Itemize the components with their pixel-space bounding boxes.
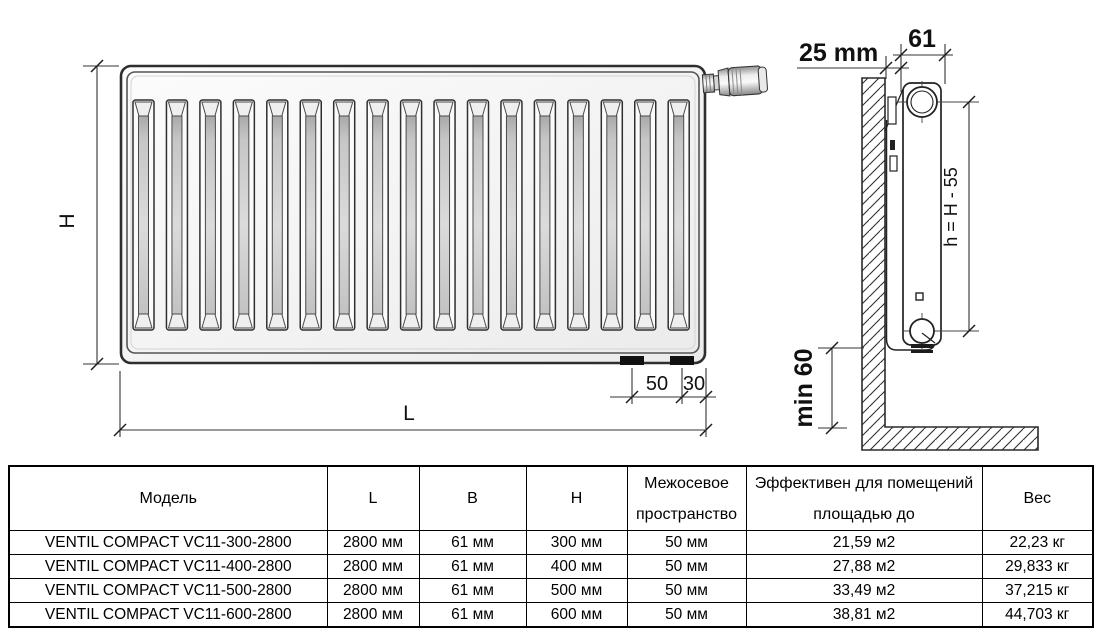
dimension-min60: min 60 [790,342,864,434]
groove [401,100,422,330]
detail-square [916,293,923,300]
label-25mm: 25 mm [799,39,878,67]
label-61: 61 [908,25,936,53]
cell-L: 2800 мм [327,603,419,628]
groove [334,100,355,330]
col-header-weight: Вес [982,466,1093,531]
groove [367,100,388,330]
cell-weight: 37,215 кг [982,579,1093,603]
groove [300,100,321,330]
cell-axis-spacing: 50 мм [627,579,746,603]
col-header-L: L [327,466,419,531]
bracket-clip [890,140,895,150]
label-H: H [56,213,79,228]
cell-B: 61 мм [419,531,526,555]
table-row: VENTIL COMPACT VC11-300-2800 2800 мм 61 … [9,531,1093,555]
cell-model: VENTIL COMPACT VC11-400-2800 [9,555,327,579]
front-view [121,65,768,365]
table-row: VENTIL COMPACT VC11-500-2800 2800 мм 61 … [9,579,1093,603]
cell-axis-spacing: 50 мм [627,555,746,579]
groove [434,100,455,330]
col-header-axis-spacing: Межосевое пространство [627,466,746,531]
radiator-spec-page: H L 50 30 [0,0,1100,635]
dimension-50-30: 50 30 [610,368,716,437]
groove [233,100,254,330]
cell-weight: 22,23 кг [982,531,1093,555]
cell-effective-area: 33,49 м2 [746,579,982,603]
groove [568,100,589,330]
cell-H: 300 мм [526,531,627,555]
cell-H: 400 мм [526,555,627,579]
cell-effective-area: 21,59 м2 [746,531,982,555]
radiator-grooves [133,100,689,330]
col-header-H: H [526,466,627,531]
header-row: Модель L B H Межосевое пространство Эффе… [9,466,1093,531]
cell-L: 2800 мм [327,579,419,603]
cell-weight: 44,703 кг [982,603,1093,628]
cell-L: 2800 мм [327,555,419,579]
cell-weight: 29,833 кг [982,555,1093,579]
groove [501,100,522,330]
dimension-L: L [114,371,712,437]
cell-H: 600 мм [526,603,627,628]
dimension-H: H [56,60,119,370]
dimension-h: h = H - 55 [941,96,975,337]
col-header-effective-area: Эффективен для помещений площадью до [746,466,982,531]
label-h-equals: h = H - 55 [941,167,961,247]
groove [200,100,221,330]
label-30: 30 [683,373,705,395]
groove [534,100,555,330]
bracket-upper [888,97,896,124]
groove [267,100,288,330]
groove [133,100,154,330]
cell-model: VENTIL COMPACT VC11-500-2800 [9,579,327,603]
side-view [862,78,1038,450]
groove [635,100,656,330]
cell-axis-spacing: 50 мм [627,531,746,555]
label-min60: min 60 [790,348,818,427]
cell-B: 61 мм [419,555,526,579]
groove [668,100,689,330]
cell-B: 61 мм [419,603,526,628]
thermostat-valve [702,65,768,97]
col-header-B: B [419,466,526,531]
wall-floor-section [862,78,1038,450]
bracket-lower [890,156,897,171]
cell-B: 61 мм [419,579,526,603]
col-header-model: Модель [9,466,327,531]
connection-stub-left [620,356,644,365]
table-row: VENTIL COMPACT VC11-600-2800 2800 мм 61 … [9,603,1093,628]
spec-table: Модель L B H Межосевое пространство Эффе… [8,465,1094,628]
technical-drawing: H L 50 30 [0,0,1100,462]
dimension-61: 61 [893,25,953,84]
cell-effective-area: 27,88 м2 [746,555,982,579]
cell-H: 500 мм [526,579,627,603]
cell-L: 2800 мм [327,531,419,555]
dimension-25mm: 25 mm [797,39,909,92]
label-L: L [403,402,415,425]
groove [166,100,187,330]
cell-model: VENTIL COMPACT VC11-300-2800 [9,531,327,555]
groove [601,100,622,330]
groove [468,100,489,330]
cell-effective-area: 38,81 м2 [746,603,982,628]
cell-model: VENTIL COMPACT VC11-600-2800 [9,603,327,628]
table-row: VENTIL COMPACT VC11-400-2800 2800 мм 61 … [9,555,1093,579]
cell-axis-spacing: 50 мм [627,603,746,628]
label-50: 50 [646,373,668,395]
connection-stub-right [670,356,694,365]
